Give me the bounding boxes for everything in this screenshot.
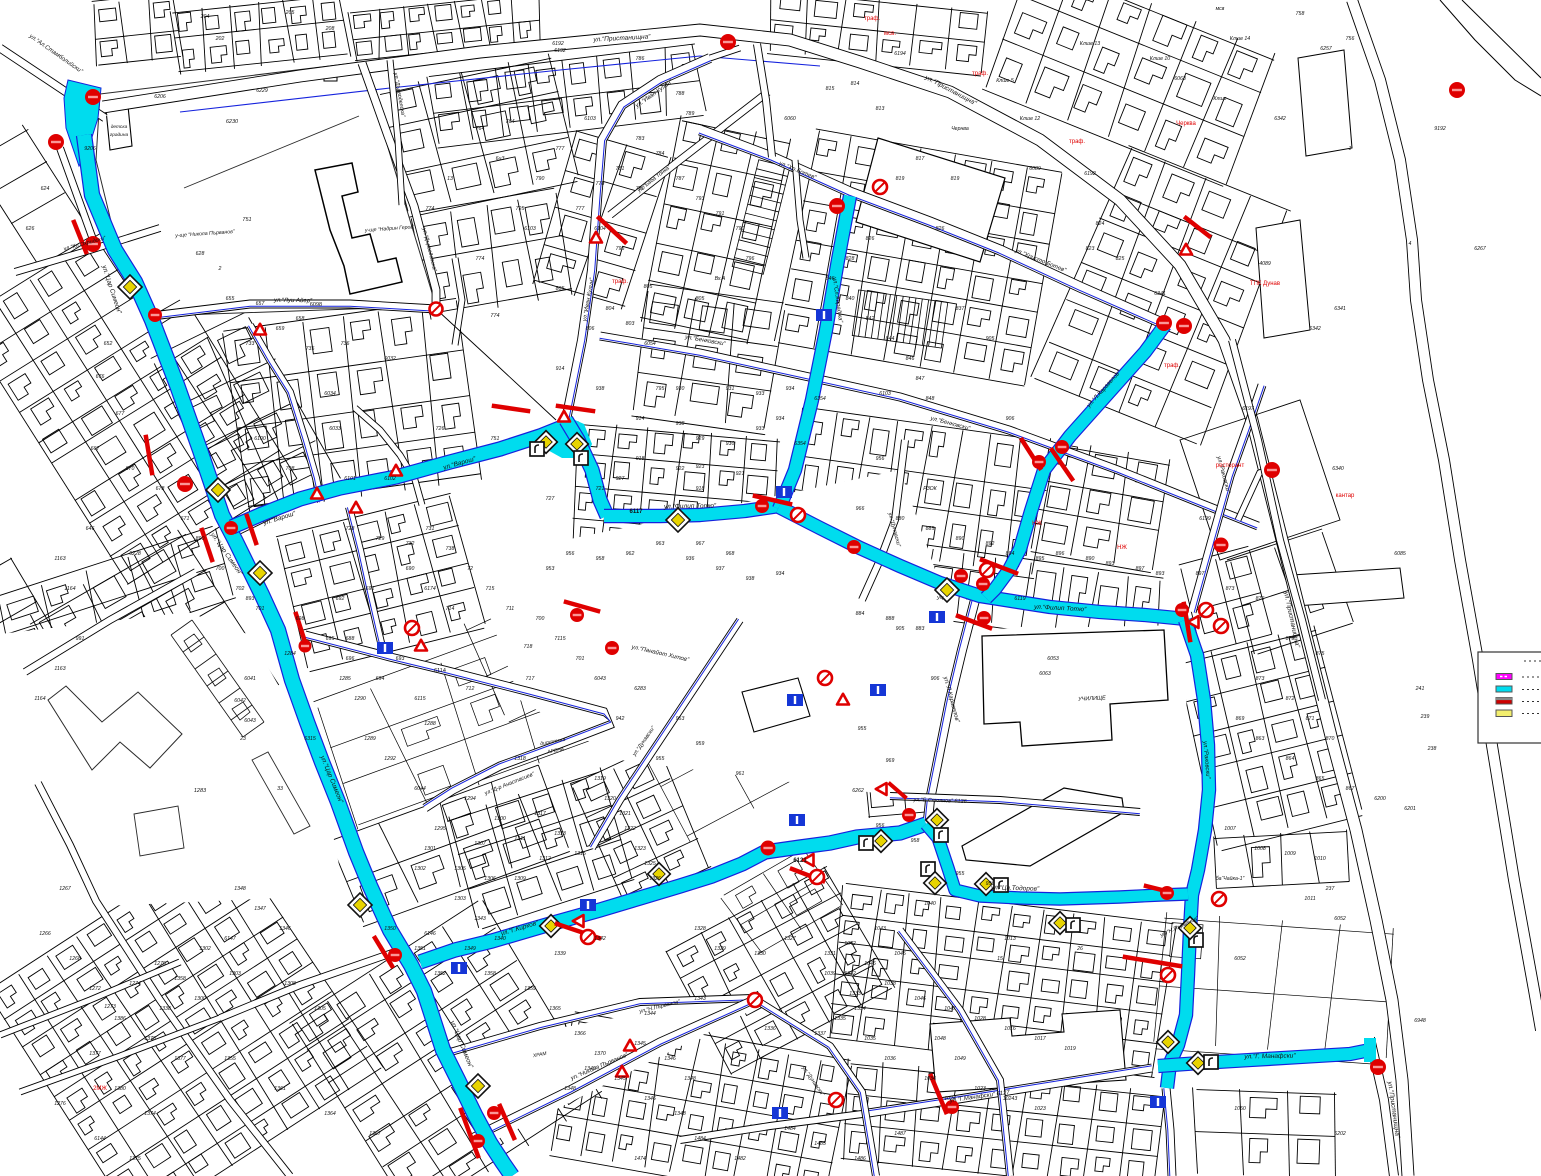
svg-text:930: 930 <box>676 386 685 392</box>
svg-text:846: 846 <box>906 356 915 362</box>
svg-text:788: 788 <box>676 91 685 97</box>
svg-text:6100: 6100 <box>254 436 266 442</box>
svg-text:890: 890 <box>196 536 205 542</box>
svg-text:6229: 6229 <box>256 88 268 94</box>
svg-text:6147: 6147 <box>224 936 237 942</box>
svg-text:937: 937 <box>716 566 726 572</box>
svg-text:876: 876 <box>1256 596 1265 602</box>
svg-text:714: 714 <box>446 606 455 612</box>
svg-text:671: 671 <box>181 516 190 522</box>
svg-text:933: 933 <box>756 426 765 432</box>
svg-text:238: 238 <box>1427 746 1437 752</box>
svg-text:6341: 6341 <box>1154 291 1166 297</box>
svg-text:880: 880 <box>896 516 905 522</box>
svg-text:1337: 1337 <box>814 1031 827 1037</box>
svg-text:6085: 6085 <box>1394 551 1406 557</box>
svg-text:931: 931 <box>726 386 735 392</box>
svg-text:1009: 1009 <box>1284 851 1296 857</box>
svg-text:1034: 1034 <box>924 1076 936 1082</box>
svg-text:1315: 1315 <box>574 851 586 857</box>
svg-text:2МЖ: 2МЖ <box>93 1086 107 1092</box>
svg-text:906: 906 <box>931 676 940 682</box>
svg-text:819: 819 <box>896 176 905 182</box>
svg-text:1378: 1378 <box>144 1036 156 1042</box>
svg-text:930: 930 <box>726 441 735 447</box>
svg-text:Клше 10: Клше 10 <box>1150 56 1171 62</box>
svg-text:204: 204 <box>200 14 210 20</box>
svg-text:956: 956 <box>876 823 885 829</box>
svg-text:1272: 1272 <box>89 986 101 992</box>
svg-text:15: 15 <box>997 956 1003 962</box>
svg-text:837: 837 <box>956 306 966 312</box>
svg-text:657: 657 <box>256 301 266 307</box>
svg-text:6262: 6262 <box>852 788 864 794</box>
svg-text:875: 875 <box>1316 651 1325 657</box>
svg-text:6230: 6230 <box>226 119 239 125</box>
svg-text:1275: 1275 <box>154 961 166 967</box>
svg-text:6283: 6283 <box>634 686 646 692</box>
svg-text:6267: 6267 <box>1474 246 1487 252</box>
svg-text:1: 1 <box>1349 146 1352 152</box>
svg-text:ТПК Дунав: ТПК Дунав <box>1250 281 1280 287</box>
svg-text:1380: 1380 <box>114 1086 126 1092</box>
svg-text:траф.: траф. <box>864 16 880 22</box>
svg-text:6041: 6041 <box>244 676 256 682</box>
svg-text:1305: 1305 <box>454 866 466 872</box>
svg-text:1038: 1038 <box>884 981 896 987</box>
svg-text:927: 927 <box>616 476 626 482</box>
svg-text:1326: 1326 <box>649 876 661 882</box>
svg-text:956: 956 <box>566 551 575 557</box>
svg-text:803: 803 <box>626 321 635 327</box>
svg-text:814: 814 <box>851 81 860 87</box>
svg-text:6192: 6192 <box>1084 171 1096 177</box>
svg-text:208: 208 <box>325 26 335 32</box>
svg-text:677: 677 <box>116 411 126 417</box>
svg-text:траф.: траф. <box>1164 363 1180 369</box>
svg-text:646: 646 <box>86 526 95 532</box>
svg-text:726: 726 <box>436 426 445 432</box>
svg-text:1348: 1348 <box>684 1076 696 1082</box>
svg-text:1340: 1340 <box>494 936 506 942</box>
svg-text:6044: 6044 <box>414 786 426 792</box>
svg-text:6052: 6052 <box>1334 916 1346 922</box>
svg-text:695: 695 <box>326 636 335 642</box>
svg-text:890: 890 <box>956 536 965 542</box>
svg-text:789: 789 <box>686 111 695 117</box>
svg-text:4: 4 <box>1409 241 1412 247</box>
svg-text:659: 659 <box>276 326 285 332</box>
svg-text:667: 667 <box>91 446 101 452</box>
svg-text:6342: 6342 <box>1309 326 1321 332</box>
svg-text:Клше 12: Клше 12 <box>1020 116 1041 122</box>
svg-text:1045: 1045 <box>894 951 906 957</box>
svg-text:траф.: траф. <box>612 279 628 285</box>
svg-text:873: 873 <box>1256 676 1265 682</box>
svg-text:732: 732 <box>406 541 415 547</box>
svg-text:1348: 1348 <box>564 1086 576 1092</box>
svg-text:867: 867 <box>1346 786 1356 792</box>
svg-text:6119: 6119 <box>1014 596 1025 602</box>
svg-text:1349: 1349 <box>584 1066 596 1072</box>
svg-text:955: 955 <box>858 726 867 732</box>
svg-text:6192: 6192 <box>552 41 564 47</box>
svg-text:кантар: кантар <box>1336 493 1355 499</box>
svg-text:6103: 6103 <box>879 391 891 397</box>
svg-text:1306: 1306 <box>484 876 496 882</box>
svg-text:6053: 6053 <box>1047 656 1059 662</box>
svg-text:921: 921 <box>736 471 745 477</box>
svg-text:727: 727 <box>546 496 556 502</box>
svg-text:1347: 1347 <box>254 906 267 912</box>
svg-text:893: 893 <box>1156 571 1165 577</box>
svg-text:1377: 1377 <box>174 1056 187 1062</box>
svg-text:1370: 1370 <box>594 1051 606 1057</box>
svg-text:893: 893 <box>1106 561 1115 567</box>
svg-text:652: 652 <box>104 341 113 347</box>
svg-text:НЖ: НЖ <box>1032 521 1042 527</box>
svg-text:1302: 1302 <box>199 946 211 952</box>
svg-text:828: 828 <box>846 256 855 262</box>
svg-text:676: 676 <box>96 374 105 380</box>
svg-text:1345: 1345 <box>634 1041 646 1047</box>
svg-text:815: 815 <box>826 86 835 92</box>
svg-text:842: 842 <box>866 316 875 322</box>
svg-text:717: 717 <box>526 676 536 682</box>
svg-text:888: 888 <box>886 616 895 622</box>
svg-text:721: 721 <box>596 486 605 492</box>
svg-text:905: 905 <box>986 336 995 342</box>
svg-text:793: 793 <box>696 196 705 202</box>
svg-text:893: 893 <box>246 596 255 602</box>
svg-text:938: 938 <box>676 421 685 427</box>
svg-text:1344: 1344 <box>644 1011 656 1017</box>
svg-text:1335: 1335 <box>834 1016 846 1022</box>
svg-text:1164: 1164 <box>34 696 45 702</box>
svg-text:1348: 1348 <box>234 886 246 892</box>
svg-text:1019: 1019 <box>1064 1046 1076 1052</box>
svg-text:1377: 1377 <box>89 1051 102 1057</box>
svg-text:1268: 1268 <box>69 956 81 962</box>
svg-text:872: 872 <box>1286 696 1295 702</box>
svg-text:795: 795 <box>656 386 665 392</box>
svg-text:938: 938 <box>596 386 605 392</box>
svg-text:6342: 6342 <box>1274 116 1286 122</box>
svg-text:1301: 1301 <box>424 846 436 852</box>
svg-text:700: 700 <box>536 616 545 622</box>
svg-text:1285: 1285 <box>339 676 351 682</box>
svg-text:6043: 6043 <box>594 676 606 682</box>
svg-text:1307: 1307 <box>474 841 487 847</box>
svg-text:1321: 1321 <box>619 811 631 817</box>
svg-text:1163: 1163 <box>54 556 65 562</box>
svg-text:1290: 1290 <box>354 696 366 702</box>
svg-text:1328: 1328 <box>694 926 706 932</box>
svg-text:790: 790 <box>536 176 545 182</box>
svg-text:804: 804 <box>606 306 615 312</box>
svg-text:751: 751 <box>242 217 251 223</box>
svg-text:923: 923 <box>696 464 705 470</box>
svg-text:градина: градина <box>110 132 129 138</box>
svg-text:890: 890 <box>1086 556 1095 562</box>
svg-text:774: 774 <box>490 313 499 319</box>
svg-text:897: 897 <box>1196 571 1206 577</box>
svg-text:1292: 1292 <box>384 756 396 762</box>
svg-text:1042: 1042 <box>844 941 856 947</box>
svg-text:774: 774 <box>426 206 435 212</box>
svg-text:959: 959 <box>696 741 705 747</box>
svg-text:1300: 1300 <box>494 816 506 822</box>
svg-text:1318: 1318 <box>514 756 526 762</box>
svg-text:1343: 1343 <box>694 996 706 1002</box>
svg-text:777: 777 <box>556 146 566 152</box>
svg-text:1485: 1485 <box>814 1141 826 1147</box>
svg-text:6174: 6174 <box>424 586 436 592</box>
svg-text:1338: 1338 <box>159 1006 171 1012</box>
svg-text:795: 795 <box>616 246 625 252</box>
svg-text:1040: 1040 <box>924 901 936 907</box>
svg-text:1007: 1007 <box>1224 826 1237 832</box>
svg-text:1386: 1386 <box>114 1016 126 1022</box>
svg-text:6052: 6052 <box>1234 956 1246 962</box>
svg-text:6257: 6257 <box>1320 46 1333 52</box>
svg-text:1294: 1294 <box>464 796 476 802</box>
svg-text:1267: 1267 <box>59 886 72 892</box>
svg-text:1024: 1024 <box>944 1096 956 1102</box>
svg-text:1303: 1303 <box>454 896 466 902</box>
svg-text:6104: 6104 <box>594 226 606 232</box>
svg-text:786: 786 <box>636 56 645 62</box>
svg-text:966: 966 <box>856 506 865 512</box>
svg-text:805: 805 <box>696 296 705 302</box>
svg-text:914: 914 <box>636 416 645 422</box>
svg-text:783: 783 <box>636 136 645 142</box>
svg-text:938: 938 <box>746 576 755 582</box>
svg-text:696: 696 <box>346 656 355 662</box>
svg-text:1330: 1330 <box>754 951 766 957</box>
svg-text:1289: 1289 <box>364 736 376 742</box>
svg-text:6054: 6054 <box>644 341 656 347</box>
svg-text:202: 202 <box>215 36 225 42</box>
svg-text:805: 805 <box>644 284 653 290</box>
svg-text:1484: 1484 <box>784 1126 796 1132</box>
svg-text:655: 655 <box>226 296 235 302</box>
svg-text:1023: 1023 <box>974 1086 986 1092</box>
svg-text:1284: 1284 <box>284 651 296 657</box>
svg-text:823: 823 <box>1086 246 1095 252</box>
svg-text:1320: 1320 <box>604 796 616 802</box>
svg-text:733: 733 <box>246 341 255 347</box>
svg-text:787: 787 <box>676 176 686 182</box>
svg-text:712: 712 <box>466 686 475 692</box>
svg-text:670: 670 <box>126 466 135 472</box>
svg-text:1365: 1365 <box>549 1006 561 1012</box>
svg-text:1366: 1366 <box>574 1031 586 1037</box>
svg-text:883: 883 <box>916 626 925 632</box>
svg-text:1028: 1028 <box>974 1016 986 1022</box>
svg-text:6033: 6033 <box>329 426 341 432</box>
svg-text:6и3: 6и3 <box>496 156 505 162</box>
svg-text:траф.: траф. <box>1069 139 1085 145</box>
svg-text:1017: 1017 <box>1034 1036 1047 1042</box>
svg-text:914: 914 <box>556 366 565 372</box>
svg-text:1325: 1325 <box>644 861 656 867</box>
svg-text:718: 718 <box>524 644 533 650</box>
svg-text:781: 781 <box>616 166 625 172</box>
svg-text:795: 795 <box>516 206 525 212</box>
svg-text:905: 905 <box>896 626 905 632</box>
svg-text:1035: 1035 <box>864 1036 876 1042</box>
svg-text:1329: 1329 <box>714 946 726 952</box>
svg-text:894: 894 <box>1006 551 1015 557</box>
svg-text:1047: 1047 <box>944 1006 957 1012</box>
svg-text:942: 942 <box>616 716 625 722</box>
svg-text:6089: 6089 <box>1029 166 1041 172</box>
svg-text:958: 958 <box>911 838 920 844</box>
svg-text:968: 968 <box>726 551 735 557</box>
svg-text:6034: 6034 <box>324 391 336 397</box>
svg-text:2: 2 <box>218 266 222 272</box>
svg-text:873: 873 <box>1226 586 1235 592</box>
svg-text:1364: 1364 <box>324 1111 336 1117</box>
svg-text:33: 33 <box>277 786 283 792</box>
svg-text:698: 698 <box>296 616 305 622</box>
svg-text:1348: 1348 <box>674 1111 686 1117</box>
svg-text:731: 731 <box>426 526 435 532</box>
svg-text:6114: 6114 <box>434 668 446 674</box>
svg-text:4089: 4089 <box>1259 261 1271 267</box>
svg-text:72: 72 <box>467 566 473 572</box>
svg-text:1317: 1317 <box>534 811 547 817</box>
svg-text:918: 918 <box>696 486 705 492</box>
svg-text:Вх.А: Вх.А <box>715 276 726 282</box>
svg-text:6032: 6032 <box>384 356 396 362</box>
svg-text:6121: 6121 <box>793 858 807 864</box>
svg-text:9192: 9192 <box>1434 126 1446 132</box>
svg-text:764: 764 <box>505 119 514 125</box>
svg-text:865: 865 <box>1316 776 1325 782</box>
svg-text:955: 955 <box>956 871 965 877</box>
svg-text:1288: 1288 <box>424 721 436 727</box>
svg-text:847: 847 <box>916 376 926 382</box>
svg-text:205: 205 <box>285 10 295 16</box>
svg-text:1352: 1352 <box>434 971 446 977</box>
svg-text:922: 922 <box>676 466 685 472</box>
svg-text:796: 796 <box>746 256 755 262</box>
svg-text:детска: детска <box>111 124 128 130</box>
svg-text:806: 806 <box>586 326 595 332</box>
svg-text:694: 694 <box>376 676 385 682</box>
svg-text:1164: 1164 <box>64 586 75 592</box>
svg-text:1023: 1023 <box>1034 1106 1046 1112</box>
svg-text:1334: 1334 <box>854 1006 866 1012</box>
svg-text:Чернва: Чернва <box>951 126 969 132</box>
svg-text:УЧ: УЧ <box>937 596 944 602</box>
svg-text:764: 764 <box>476 126 485 132</box>
svg-text:869: 869 <box>1236 716 1245 722</box>
svg-text:863: 863 <box>1256 736 1265 742</box>
svg-text:6063: 6063 <box>1039 671 1051 677</box>
svg-text:738: 738 <box>446 546 455 552</box>
svg-text:774: 774 <box>476 256 485 262</box>
svg-text:936: 936 <box>686 556 695 562</box>
svg-text:9206: 9206 <box>84 146 96 152</box>
svg-text:756: 756 <box>1346 36 1355 42</box>
svg-text:241: 241 <box>1415 686 1425 692</box>
svg-text:1323: 1323 <box>634 846 646 852</box>
svg-text:6103: 6103 <box>584 116 596 122</box>
svg-text:840: 840 <box>846 296 855 302</box>
svg-text:846: 846 <box>826 276 835 282</box>
svg-text:1339: 1339 <box>554 951 566 957</box>
svg-text:1308: 1308 <box>284 981 296 987</box>
svg-text:864: 864 <box>1286 756 1295 762</box>
svg-text:Клше 5: Клше 5 <box>996 78 1014 84</box>
svg-text:1350: 1350 <box>384 926 396 932</box>
svg-text:7115: 7115 <box>554 636 565 642</box>
svg-text:700: 700 <box>216 566 225 572</box>
svg-text:1046: 1046 <box>914 996 926 1002</box>
svg-text:1266: 1266 <box>39 931 51 937</box>
svg-text:991: 991 <box>76 636 85 642</box>
svg-text:1309: 1309 <box>514 876 526 882</box>
svg-text:мсв: мсв <box>1216 6 1225 12</box>
svg-text:ул.“Луи Айер”: ул.“Луи Айер” <box>273 297 313 305</box>
svg-text:1313: 1313 <box>554 831 566 837</box>
svg-text:1332: 1332 <box>844 971 856 977</box>
svg-text:708: 708 <box>286 466 295 472</box>
svg-text:239: 239 <box>1420 714 1430 720</box>
svg-text:6043: 6043 <box>244 718 256 724</box>
svg-text:1273: 1273 <box>104 1004 116 1010</box>
svg-text:237: 237 <box>1325 886 1336 892</box>
svg-text:953: 953 <box>676 716 685 722</box>
svg-text:701: 701 <box>576 656 585 662</box>
svg-text:848: 848 <box>926 396 935 402</box>
svg-text:784: 784 <box>656 151 665 157</box>
svg-text:6341: 6341 <box>1334 306 1346 312</box>
svg-text:1351: 1351 <box>414 946 426 952</box>
svg-text:1302: 1302 <box>414 866 426 872</box>
svg-text:1036: 1036 <box>884 1056 896 1062</box>
svg-text:1484: 1484 <box>694 1136 706 1142</box>
svg-text:1327: 1327 <box>784 936 797 942</box>
svg-text:844: 844 <box>886 336 895 342</box>
svg-text:6206: 6206 <box>154 94 166 100</box>
svg-text:956: 956 <box>986 881 995 887</box>
svg-text:735: 735 <box>306 346 315 352</box>
svg-text:6228: 6228 <box>129 551 141 557</box>
svg-text:1375: 1375 <box>129 1156 141 1162</box>
svg-text:Клше 14: Клше 14 <box>1230 36 1251 42</box>
svg-text:933: 933 <box>756 391 765 397</box>
svg-text:23: 23 <box>239 736 246 742</box>
svg-text:1482: 1482 <box>734 1156 746 1162</box>
svg-text:26: 26 <box>1076 946 1083 952</box>
svg-text:953: 953 <box>546 566 555 572</box>
svg-text:1276: 1276 <box>54 1101 66 1107</box>
svg-text:878: 878 <box>1286 636 1295 642</box>
svg-text:906: 906 <box>1006 416 1015 422</box>
svg-text:1305: 1305 <box>314 1006 326 1012</box>
svg-text:1349: 1349 <box>464 946 476 952</box>
svg-text:702: 702 <box>236 586 245 592</box>
svg-text:729: 729 <box>376 536 385 542</box>
svg-text:1346: 1346 <box>644 1096 656 1102</box>
svg-text:6063: 6063 <box>1174 76 1186 82</box>
svg-text:929: 929 <box>696 436 705 442</box>
svg-text:826: 826 <box>936 226 945 232</box>
